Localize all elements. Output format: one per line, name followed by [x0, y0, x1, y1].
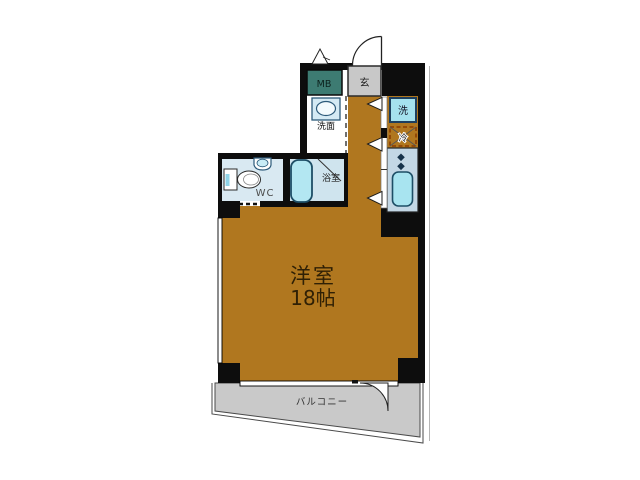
toilet-room-label: WC — [256, 188, 275, 199]
main-room-size-label: 18帖 — [290, 286, 335, 310]
washstand-label: 洗面 — [317, 120, 335, 132]
washbasin-icon — [312, 98, 340, 120]
corner-sink-icon — [254, 158, 271, 170]
washing-machine-label: 洗 — [398, 105, 408, 117]
wall-left-upper — [300, 63, 307, 153]
wall-corner-block-topleft — [218, 201, 240, 218]
wall-wc-left — [218, 153, 222, 203]
floorplan-page: MB 玄 洗面 WC 浴室 洗 冷 — [0, 0, 640, 480]
meter-box-label: MB — [317, 79, 332, 90]
bathtub-icon — [291, 160, 312, 202]
toilet-icon — [224, 169, 261, 190]
bathroom-label: 浴室 — [322, 172, 340, 184]
main-room-name-label: 洋室 — [290, 264, 336, 288]
kitchen-sink-icon — [393, 172, 413, 206]
wall-right — [418, 63, 425, 383]
wall-wc-bath-divider — [283, 158, 290, 203]
vent-triangle-icon — [312, 49, 330, 64]
wall-wc-top — [218, 153, 347, 159]
balcony-door-jamb — [352, 380, 358, 384]
floorplan-svg: MB 玄 洗面 WC 浴室 洗 冷 — [0, 0, 640, 480]
wall-corner-block-bottomright — [398, 358, 425, 383]
wall-bath-right — [344, 153, 348, 207]
balcony-label: バルコニー — [296, 397, 348, 408]
refrigerator-label: 冷 — [398, 132, 407, 144]
wall-corner-block-bottomleft — [218, 363, 240, 383]
entrance-door-arc-icon — [353, 37, 382, 67]
left-window — [218, 218, 222, 363]
hallway-floor — [348, 96, 381, 208]
entrance-label: 玄 — [360, 76, 370, 89]
